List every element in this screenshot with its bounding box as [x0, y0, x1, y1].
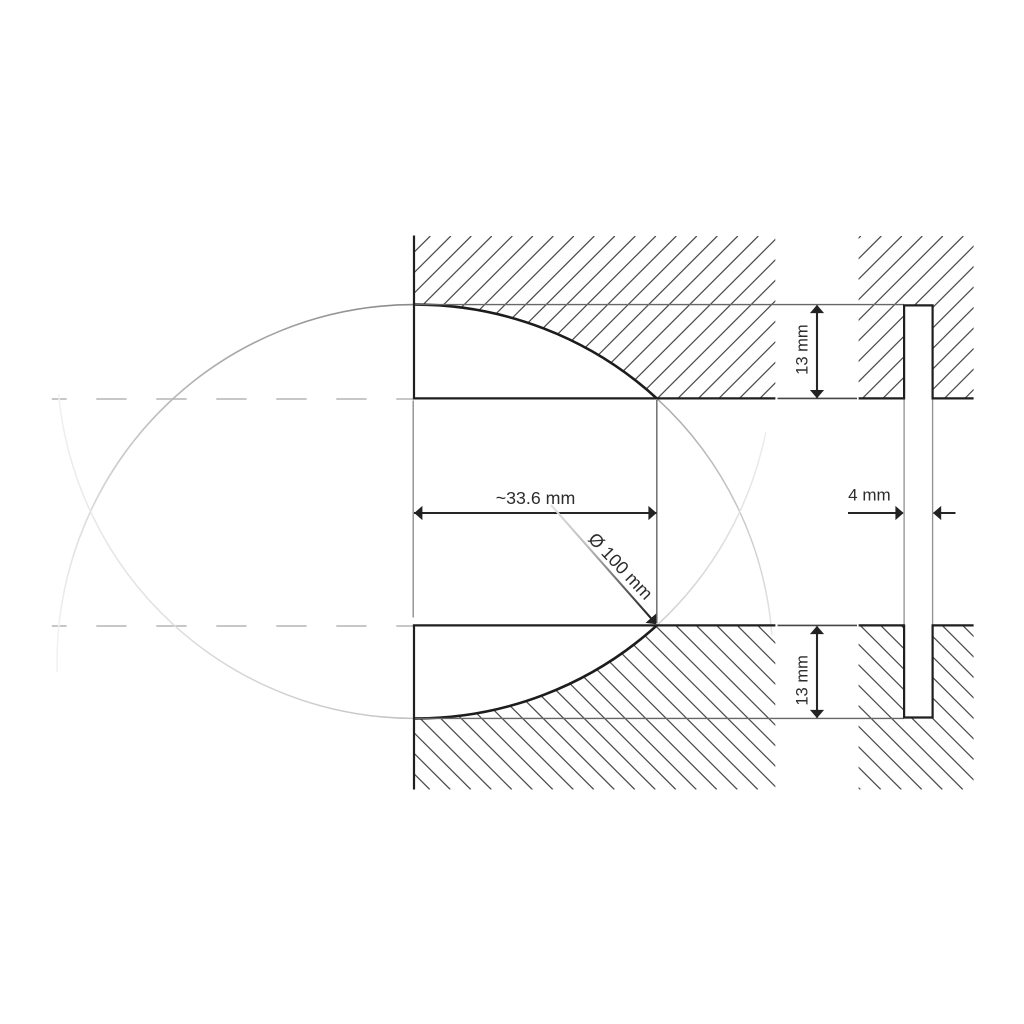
svg-text:~33.6 mm: ~33.6 mm: [496, 488, 576, 508]
svg-text:13 mm: 13 mm: [794, 324, 812, 374]
svg-text:4 mm: 4 mm: [848, 486, 891, 505]
svg-text:13 mm: 13 mm: [794, 655, 812, 705]
